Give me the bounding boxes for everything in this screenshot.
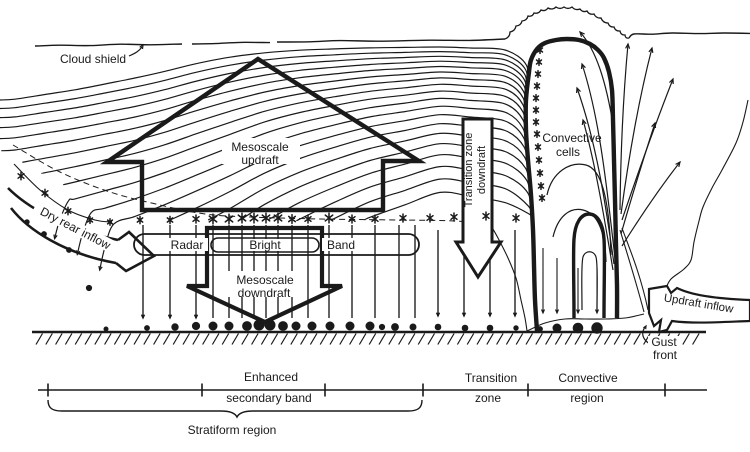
svg-text:Transition: Transition xyxy=(465,371,517,385)
svg-text:Gust: Gust xyxy=(651,335,677,349)
svg-text:front: front xyxy=(653,348,678,362)
svg-text:secondary band: secondary band xyxy=(226,391,311,405)
svg-text:Stratiform region: Stratiform region xyxy=(188,423,277,437)
svg-text:Transition zone: Transition zone xyxy=(463,133,475,208)
svg-text:downdraft: downdraft xyxy=(238,286,291,300)
svg-text:Convective: Convective xyxy=(558,371,618,385)
svg-text:Dry rear inflow: Dry rear inflow xyxy=(38,204,113,252)
svg-text:Bright: Bright xyxy=(249,238,281,252)
svg-text:downdraft: downdraft xyxy=(476,146,488,194)
svg-text:region: region xyxy=(570,391,603,405)
svg-text:zone: zone xyxy=(475,391,501,405)
svg-text:updraft: updraft xyxy=(241,153,279,167)
svg-text:cells: cells xyxy=(556,145,580,159)
svg-text:Band: Band xyxy=(327,238,355,252)
svg-text:Mesoscale: Mesoscale xyxy=(231,140,289,154)
svg-text:Mesoscale: Mesoscale xyxy=(236,273,294,287)
svg-text:Cloud shield: Cloud shield xyxy=(60,52,126,66)
svg-text:Radar: Radar xyxy=(171,238,204,252)
svg-text:Enhanced: Enhanced xyxy=(244,370,298,384)
